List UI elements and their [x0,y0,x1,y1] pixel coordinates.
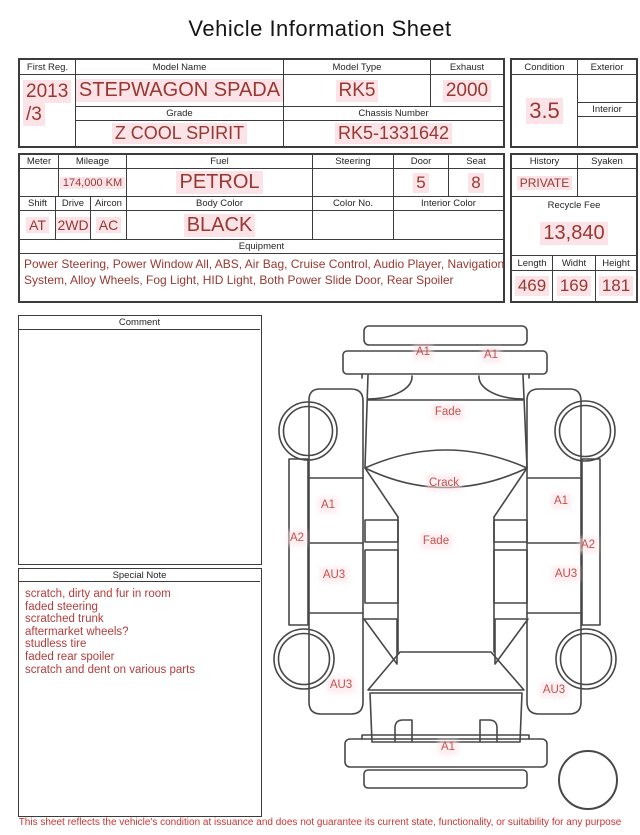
window-right-1 [494,520,527,542]
history-header: History [512,155,578,169]
length-value: 469 [512,271,553,301]
meter-value [20,169,59,197]
width-header: Widht [553,256,596,271]
diagram-label-a1-front-bumper-left: A1 [415,346,431,358]
drive-header: Drive [56,197,91,211]
height-value: 181 [596,271,636,301]
diagram-label-fade-hood: Fade [434,406,462,418]
door-column-right [527,389,581,714]
chassis-number-header: Chassis Number [284,107,503,121]
exhaust-value: 2000 [431,75,503,107]
headlight-arc-left [368,376,412,399]
length-header: Length [512,256,553,271]
condition-box: Condition 3.5 Exterior Interior [510,58,638,148]
rear-bottom-bar-shape [364,770,527,788]
rear-right-wheel-inner [561,634,612,685]
footer-disclaimer: This sheet reflects the vehicle's condit… [0,817,640,828]
first-reg-value: 2013 /3 [20,75,76,146]
color-no-value [313,211,394,240]
c-pillar-window-right [495,619,528,664]
comment-body [19,330,261,564]
history-value: PRIVATE [512,169,578,197]
fuel-header: Fuel [127,155,313,169]
page-title: Vehicle Information Sheet [0,16,640,42]
body-color-header: Body Color [127,197,313,211]
recycle-fee-header: Recycle Fee [512,199,636,212]
body-color-value: BLACK [127,211,313,240]
rear-right-wheel [556,629,616,689]
interior-header: Interior [578,103,636,117]
exhaust-header: Exhaust [431,60,503,75]
seat-value: 8 [449,169,503,197]
front-right-wheel [555,401,615,461]
comment-header: Comment [19,316,260,330]
rear-left-wheel-inner [279,634,330,685]
diagram-label-a1-front-door-left: A1 [320,499,336,511]
window-left-1 [365,520,398,542]
interior-color-header: Interior Color [394,197,503,211]
syaken-header: Syaken [578,155,636,169]
condition-score: 3.5 [512,75,578,146]
model-name-value: STEPWAGON SPADA [76,75,284,107]
tail-lamp-right [480,720,497,741]
door-header: Door [394,155,449,169]
window-right-2 [494,550,527,603]
first-reg-header: First Reg. [20,60,76,75]
equipment-header: Equipment [20,240,503,254]
door-value: 5 [394,169,449,197]
special-note-line: scratch and dent on various parts [25,664,255,677]
diagram-label-au3-quarter-left: AU3 [329,679,353,691]
seat-header: Seat [449,155,503,169]
exterior-value [578,75,636,103]
front-left-wheel [279,402,337,460]
registration-box: First Reg. 2013 /3 Model Name STEPWAGON … [18,58,505,148]
spare-tire-circle [559,751,617,809]
special-note-line: faded rear spoiler [25,651,255,664]
a-pillar-lines [365,468,527,517]
front-left-wheel-inner [284,407,333,456]
diagram-label-a1-front-door-right: A1 [553,495,569,507]
mileage-value: 174,000 KM [59,169,127,197]
equipment-text: Power Steering, Power Window All, ABS, A… [20,254,511,307]
diagram-label-a1-rear-bumper: A1 [440,741,456,753]
special-note-header: Special Note [19,569,260,582]
diagram-label-a2-sill-right: A2 [580,539,596,551]
width-value: 169 [553,271,596,301]
condition-header: Condition [512,60,578,75]
model-type-value: RK5 [284,75,431,107]
comment-box: Comment [18,315,262,565]
grade-value: Z COOL SPIRIT [76,121,284,146]
tail-lamp-left [395,720,412,741]
c-pillar-window-left [364,619,397,664]
first-reg-month: /3 [23,103,45,126]
rear-left-wheel [274,629,334,689]
special-note-line: faded steering [25,601,255,614]
diagram-label-au3-slide-door-right: AU3 [554,568,578,580]
color-no-header: Color No. [313,197,394,211]
drive-value: 2WD [56,211,91,240]
special-note-line: scratched trunk [25,613,255,626]
diagram-label-au3-slide-door-left: AU3 [322,569,346,581]
history-box: History PRIVATE Syaken Recycle Fee 13,84… [510,153,638,303]
special-note-line: scratch, dirty and fur in room [25,588,255,601]
recycle-fee-value: 13,840 [512,212,636,256]
chassis-number-value: RK5-1331642 [284,121,503,146]
exterior-header: Exterior [578,60,636,75]
diagram-label-a1-front-bumper-right: A1 [483,349,499,361]
aircon-value: AC [91,211,127,240]
interior-value [578,117,636,146]
model-name-header: Model Name [76,60,284,75]
aircon-header: Aircon [91,197,127,211]
shift-header: Shift [20,197,56,211]
height-header: Height [596,256,636,271]
diagram-label-au3-quarter-right: AU3 [542,684,566,696]
fuel-value: PETROL [127,169,313,197]
special-note-box: Special Note scratch, dirty and fur in r… [18,568,262,817]
spec-box: Meter Mileage 174,000 KM Fuel PETROL Ste… [18,153,505,303]
headlight-arc-right [479,376,523,399]
diagram-label-a2-sill-left: A2 [289,532,305,544]
shift-value: AT [20,211,56,240]
syaken-value [578,169,636,197]
vehicle-information-sheet: Vehicle Information Sheet First Reg. 201… [0,0,640,835]
interior-color-value [394,211,503,240]
model-type-header: Model Type [284,60,431,75]
grade-header: Grade [76,107,284,121]
special-note-line: aftermarket wheels? [25,626,255,639]
mileage-header: Mileage [59,155,127,169]
steering-value [313,169,394,197]
steering-header: Steering [313,155,394,169]
first-reg-year: 2013 [23,80,71,103]
special-note-line: studless tire [25,638,255,651]
front-top-bar-shape [364,326,527,345]
diagram-label-crack-windshield: Crack [428,477,460,489]
meter-header: Meter [20,155,59,169]
window-left-2 [365,550,398,603]
special-note-lines: scratch, dirty and fur in roomfaded stee… [19,582,261,816]
car-damage-diagram: A1A1FadeCrackA1A1A2FadeA2AU3AU3AU3AU3A1 [268,315,640,817]
hood-side-lines [365,375,527,467]
diagram-label-fade-roof: Fade [422,535,450,547]
front-bumper-shape [343,351,547,374]
front-right-wheel-inner [560,406,611,457]
